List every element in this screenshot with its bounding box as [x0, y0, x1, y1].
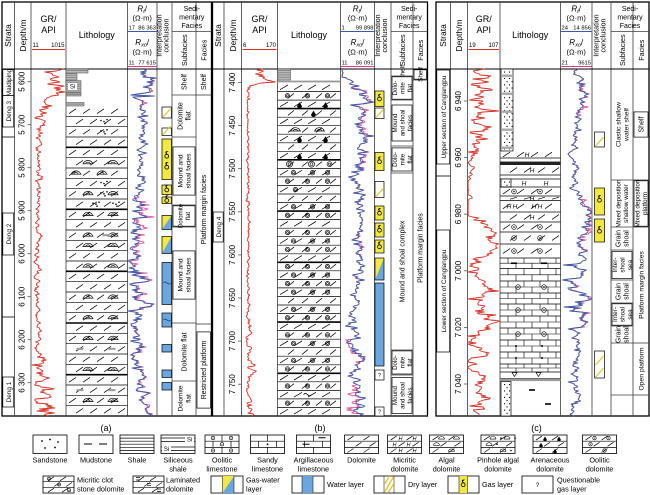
svg-text:7 020: 7 020: [454, 317, 463, 338]
svg-text:shoal facies: shoal facies: [185, 257, 192, 293]
svg-text:7 650: 7 650: [228, 287, 237, 308]
svg-text:dolomite: dolomite: [433, 465, 461, 474]
svg-text:Subfacies: Subfacies: [618, 34, 627, 66]
svg-text:Facies: Facies: [620, 23, 641, 30]
svg-text:H: H: [413, 436, 417, 442]
svg-text:(Ω·m): (Ω·m): [348, 14, 368, 23]
svg-text:H: H: [522, 180, 527, 187]
svg-text:H: H: [530, 214, 535, 221]
svg-text:7 500: 7 500: [228, 158, 237, 179]
svg-text:Siliceous: Siliceous: [163, 456, 193, 465]
svg-text:Micritic: Micritic: [393, 456, 416, 465]
svg-text:Gas-water: Gas-water: [246, 476, 280, 485]
svg-text:5 900: 5 900: [18, 200, 27, 221]
svg-text:flat: flat: [185, 212, 192, 221]
svg-text:mite: mite: [399, 82, 406, 94]
svg-text:5 700: 5 700: [18, 114, 27, 135]
svg-text:21: 21: [562, 61, 568, 67]
svg-text:dolomite: dolomite: [586, 465, 614, 474]
svg-text:Si: Si: [164, 447, 169, 453]
svg-text:6 100: 6 100: [18, 286, 27, 307]
svg-text:Oolitic: Oolitic: [589, 456, 610, 465]
svg-text:Grain: Grain: [615, 326, 622, 343]
svg-text:GR/: GR/: [40, 14, 57, 24]
svg-text:Facies: Facies: [399, 23, 420, 30]
svg-text:Strata: Strata: [438, 24, 448, 47]
svg-text:Si: Si: [187, 437, 192, 443]
svg-text:7 040: 7 040: [454, 373, 463, 394]
svg-text:GR/: GR/: [476, 14, 493, 24]
svg-text:Mound: Mound: [392, 113, 399, 132]
svg-text:Facies: Facies: [200, 39, 209, 61]
svg-text:7 000: 7 000: [454, 260, 463, 281]
svg-text:H: H: [532, 204, 537, 211]
svg-text:5 800: 5 800: [18, 157, 27, 178]
svg-text:Dolomite: Dolomite: [178, 203, 185, 228]
svg-text:Sandy: Sandy: [257, 456, 278, 465]
svg-text:dolomite: dolomite: [166, 485, 194, 494]
svg-text:Dolo-: Dolo-: [392, 355, 399, 370]
svg-text:86 363: 86 363: [138, 26, 156, 32]
svg-text:Pinhole algal: Pinhole algal: [477, 456, 519, 465]
svg-text:gas layer: gas layer: [557, 485, 587, 494]
svg-text:(a): (a): [101, 423, 112, 433]
svg-text:19: 19: [469, 43, 476, 49]
svg-text:Gas layer: Gas layer: [482, 480, 514, 489]
svg-text:Dolomite: Dolomite: [178, 385, 185, 411]
svg-text:shoal: shoal: [624, 230, 631, 247]
svg-text:mentary: mentary: [179, 15, 205, 22]
svg-text:(Ω·m): (Ω·m): [133, 14, 153, 23]
svg-text:Strata: Strata: [213, 24, 223, 47]
svg-text:Facies: Facies: [181, 23, 202, 30]
svg-text:H: H: [393, 443, 397, 449]
svg-text:Dolomite: Dolomite: [177, 102, 184, 130]
svg-text:layer: layer: [246, 485, 262, 494]
svg-text:(Ω·m): (Ω·m): [567, 14, 587, 23]
svg-text:(Ω·m): (Ω·m): [348, 48, 368, 57]
svg-text:H: H: [399, 436, 403, 442]
svg-text:mentary: mentary: [397, 15, 423, 22]
svg-text:Dolomite: Dolomite: [347, 456, 376, 465]
svg-text:shoal: shoal: [624, 283, 631, 300]
svg-text:Upper section of Canglangpu: Upper section of Canglangpu: [441, 75, 448, 158]
svg-text:7 700: 7 700: [228, 331, 237, 352]
svg-text:platform: platform: [642, 192, 649, 215]
svg-text:Shale: Shale: [128, 456, 147, 465]
svg-text:Si: Si: [70, 85, 75, 91]
svg-text:14 856: 14 856: [573, 26, 591, 32]
svg-text:7 550: 7 550: [228, 201, 237, 222]
svg-text:Lithology: Lithology: [512, 30, 549, 40]
svg-text:Dolomite flat: Dolomite flat: [181, 332, 188, 371]
svg-text:17: 17: [129, 26, 135, 32]
svg-text:24: 24: [562, 26, 569, 32]
svg-text:Arenaceous: Arenaceous: [531, 456, 570, 465]
svg-text:170: 170: [266, 43, 277, 49]
svg-text:Depth/m: Depth/m: [228, 19, 238, 51]
svg-text:(c): (c): [531, 423, 542, 433]
svg-text:Mudstone: Mudstone: [80, 456, 112, 465]
svg-text:Strata: Strata: [3, 24, 13, 47]
svg-text:Questionable: Questionable: [557, 476, 600, 485]
svg-text:shoal: shoal: [619, 307, 626, 322]
svg-text:Shelf: Shelf: [201, 74, 208, 90]
svg-text:GR/: GR/: [251, 14, 268, 24]
svg-text:Mound and: Mound and: [178, 154, 185, 187]
svg-text:1015: 1015: [51, 43, 65, 49]
svg-text:dolomite: dolomite: [484, 465, 512, 474]
svg-text:Sedi-: Sedi-: [401, 6, 418, 13]
svg-text:facies: facies: [407, 115, 414, 131]
svg-text:Shelf: Shelf: [181, 74, 188, 90]
svg-text:mite: mite: [399, 356, 406, 368]
svg-text:(b): (b): [315, 423, 326, 433]
svg-text:6 200: 6 200: [18, 329, 27, 350]
svg-text:(Ω·m): (Ω·m): [567, 48, 587, 57]
svg-text:Dry layer: Dry layer: [408, 480, 438, 489]
svg-text:shoal facies: shoal facies: [185, 153, 192, 189]
svg-text:conclusion: conclusion: [599, 19, 608, 53]
svg-text:Restricted platform: Restricted platform: [201, 340, 208, 399]
svg-text:Water layer: Water layer: [327, 480, 365, 489]
svg-text:dolomite: dolomite: [536, 465, 564, 474]
svg-text:limestone: limestone: [298, 465, 329, 474]
svg-text:H: H: [513, 204, 518, 211]
svg-text:Shelf: Shelf: [638, 116, 645, 132]
svg-text:H: H: [538, 204, 543, 211]
svg-text:shoal: shoal: [624, 326, 631, 343]
svg-text:Subfacies: Subfacies: [180, 34, 189, 66]
svg-text:77 615: 77 615: [138, 61, 156, 67]
svg-text:Oolitic: Oolitic: [212, 456, 233, 465]
svg-text:11: 11: [33, 43, 40, 49]
svg-text:Lithology: Lithology: [79, 30, 116, 40]
svg-text:Mixed deposition: Mixed deposition: [635, 179, 642, 227]
svg-text:?: ?: [378, 373, 381, 379]
svg-text:water shelf: water shelf: [623, 108, 630, 142]
svg-text:flat: flat: [407, 358, 414, 367]
svg-text:Deng 1: Deng 1: [6, 381, 13, 402]
svg-text:shoal: shoal: [619, 257, 626, 272]
svg-text:Laminated: Laminated: [166, 476, 200, 485]
svg-text:Deng 2: Deng 2: [6, 223, 13, 244]
svg-text:6 000: 6 000: [18, 243, 27, 264]
svg-text:11: 11: [129, 61, 135, 67]
svg-text:Mixed deposition: Mixed deposition: [616, 179, 623, 227]
svg-text:flat: flat: [407, 84, 414, 93]
svg-text:Argillaceous: Argillaceous: [294, 456, 334, 465]
svg-text:and shoal: and shoal: [399, 110, 406, 137]
svg-text:H: H: [507, 204, 512, 211]
svg-text:7 600: 7 600: [228, 244, 237, 265]
svg-text:Inter-: Inter-: [612, 307, 619, 322]
svg-text:flat: flat: [185, 394, 192, 403]
svg-text:Facies: Facies: [637, 39, 646, 61]
svg-text:Facies: Facies: [416, 39, 425, 61]
svg-text:99 898: 99 898: [356, 26, 374, 32]
svg-text:flat: flat: [186, 111, 193, 120]
svg-text:Dolo-: Dolo-: [392, 81, 399, 96]
svg-text:6 300: 6 300: [18, 372, 27, 393]
svg-text:dolomite: dolomite: [391, 465, 419, 474]
svg-text:86 091: 86 091: [356, 61, 374, 67]
svg-text:Mound and shoal complex: Mound and shoal complex: [399, 220, 406, 302]
svg-text:API: API: [252, 25, 267, 35]
svg-text:H: H: [530, 167, 535, 174]
svg-text:Deng 3: Deng 3: [6, 100, 13, 121]
svg-text:(Ω·m): (Ω·m): [133, 48, 153, 57]
svg-text:?: ?: [378, 410, 381, 416]
svg-text:Algal: Algal: [438, 456, 455, 465]
svg-text:6 940: 6 940: [454, 90, 463, 111]
svg-text:Lower section of Canglangpu: Lower section of Canglangpu: [441, 249, 448, 332]
svg-text:stone dolomite: stone dolomite: [77, 485, 124, 494]
svg-text:Grain: Grain: [615, 230, 622, 247]
svg-text:H: H: [413, 449, 417, 455]
svg-text:7 400: 7 400: [228, 72, 237, 93]
svg-text:7 450: 7 450: [228, 115, 237, 136]
svg-text:Platform margin facies: Platform margin facies: [418, 213, 425, 283]
svg-text:conclusion: conclusion: [380, 19, 389, 53]
svg-text:Subfacies: Subfacies: [398, 34, 407, 66]
svg-text:H: H: [399, 449, 403, 455]
svg-text:Deng 4: Deng 4: [216, 216, 223, 237]
svg-text:flat: flat: [407, 155, 414, 164]
svg-text:H: H: [407, 443, 411, 449]
svg-text:6 980: 6 980: [454, 204, 463, 225]
svg-text:limestone: limestone: [252, 465, 283, 474]
svg-text:conclusion: conclusion: [162, 19, 171, 53]
svg-text:Mound and: Mound and: [178, 258, 185, 291]
svg-text:H: H: [544, 180, 549, 187]
svg-text:Maidiping: Maidiping: [6, 68, 13, 96]
svg-text:Platform margin facies: Platform margin facies: [201, 174, 208, 244]
svg-text:1: 1: [342, 26, 345, 32]
svg-text:9615: 9615: [578, 61, 591, 67]
svg-text:API: API: [41, 25, 56, 35]
svg-text:Dolo-: Dolo-: [392, 152, 399, 167]
svg-text:107: 107: [488, 43, 499, 49]
svg-text:Sedi-: Sedi-: [184, 6, 201, 13]
svg-text:facies: facies: [407, 387, 414, 403]
svg-text:Lithology: Lithology: [291, 30, 328, 40]
svg-text:and shoal: and shoal: [399, 382, 406, 409]
svg-text:Sandstone: Sandstone: [33, 456, 68, 465]
svg-text:shallow water: shallow water: [623, 183, 630, 223]
svg-text:11: 11: [342, 61, 348, 67]
svg-text:Grain: Grain: [615, 283, 622, 300]
svg-text:Inter-: Inter-: [612, 258, 619, 273]
svg-text:API: API: [477, 25, 492, 35]
svg-text:Clastic shallow: Clastic shallow: [615, 102, 622, 147]
svg-text:limestone: limestone: [206, 465, 237, 474]
svg-text:5 600: 5 600: [18, 71, 27, 92]
svg-text:Mound: Mound: [392, 385, 399, 404]
svg-text:H: H: [530, 196, 535, 203]
svg-text:shale: shale: [169, 465, 186, 474]
svg-text:mentary: mentary: [617, 15, 643, 22]
svg-text:Platform margin facies: Platform margin facies: [638, 251, 645, 319]
svg-text:sea: sea: [627, 259, 634, 270]
svg-text:Depth/m: Depth/m: [18, 19, 28, 51]
svg-text:Open platform: Open platform: [638, 347, 645, 390]
svg-text:Depth/m: Depth/m: [454, 19, 464, 51]
svg-text:6 960: 6 960: [454, 147, 463, 168]
svg-text:Sedi-: Sedi-: [622, 6, 639, 13]
svg-text:Micritic clot: Micritic clot: [77, 476, 113, 485]
svg-text:mite: mite: [399, 153, 406, 165]
svg-text:sea: sea: [627, 309, 634, 320]
svg-text:7 750: 7 750: [228, 374, 237, 395]
